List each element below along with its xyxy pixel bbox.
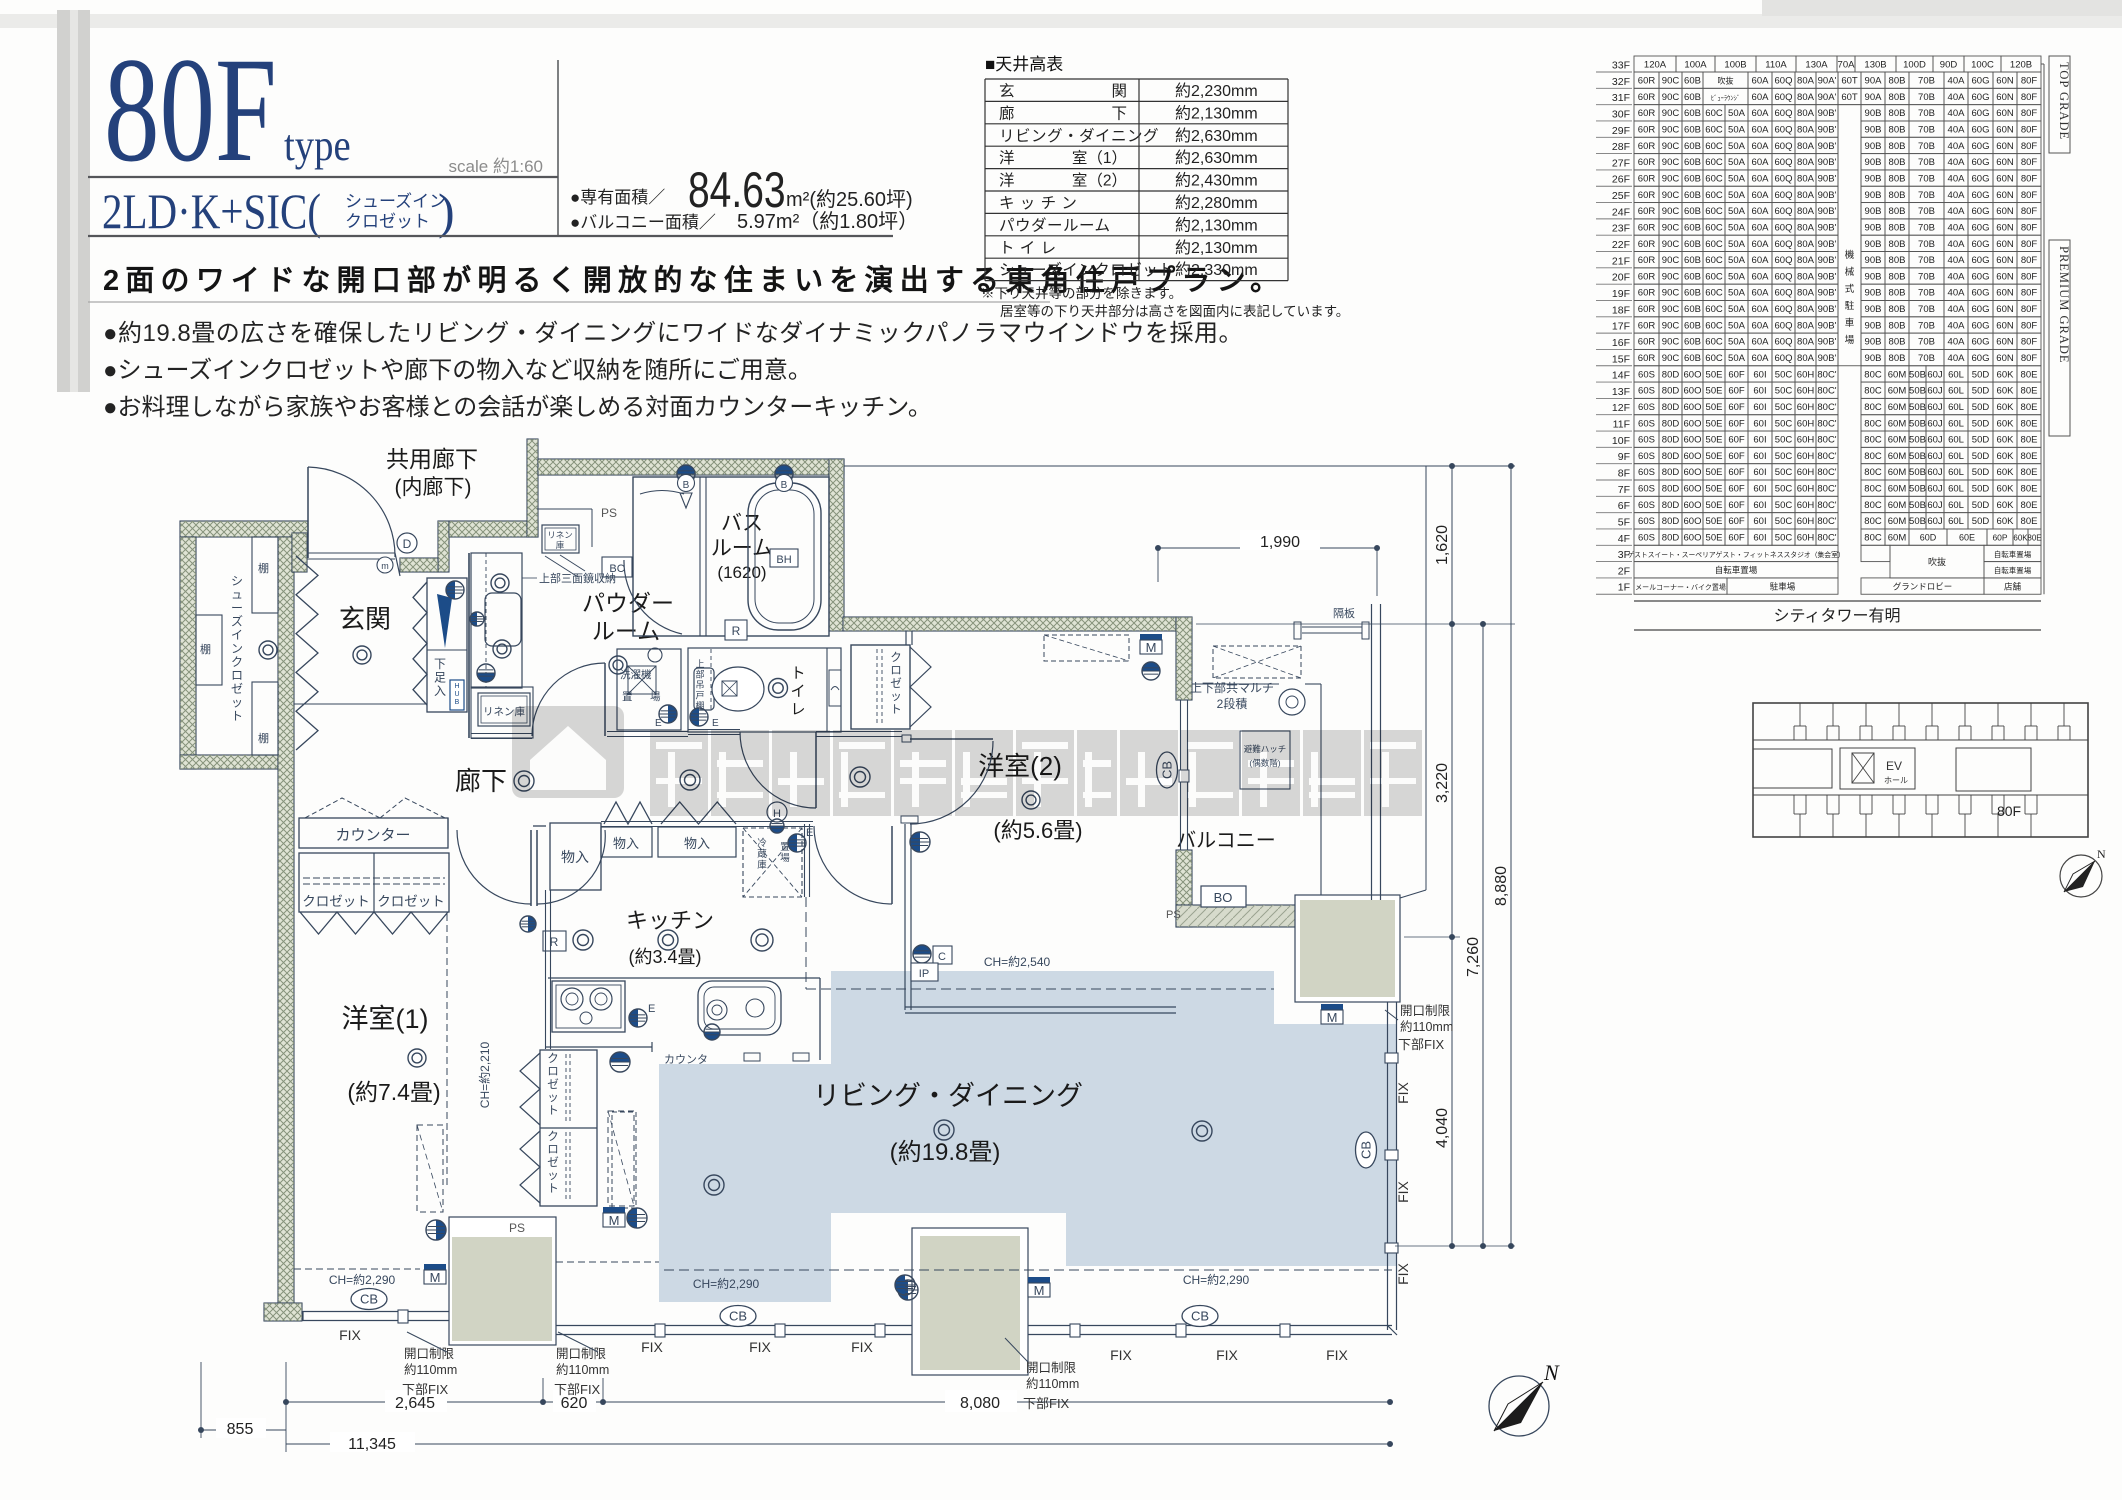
svg-text:80A: 80A (1797, 157, 1815, 168)
svg-text:18F: 18F (1612, 304, 1630, 316)
svg-text:80E: 80E (2021, 451, 2038, 462)
svg-text:80B: 80B (1889, 157, 1906, 168)
svg-text:2,645: 2,645 (395, 1395, 435, 1412)
svg-text:60G: 60G (1972, 239, 1990, 250)
svg-text:60Q: 60Q (1775, 157, 1793, 168)
svg-text:式: 式 (1845, 283, 1855, 295)
svg-text:60J: 60J (1927, 418, 1943, 429)
svg-text:リネン: リネン (547, 530, 573, 540)
svg-text:50E: 50E (1706, 418, 1723, 429)
svg-text:(約7.4畳): (約7.4畳) (347, 1079, 440, 1105)
svg-text:場: 場 (1845, 334, 1855, 346)
svg-text:33F: 33F (1612, 60, 1630, 72)
svg-text:ッ: ッ (890, 691, 902, 703)
svg-text:90B': 90B' (1818, 337, 1837, 348)
svg-text:M: M (609, 1213, 620, 1228)
svg-text:40A: 40A (1948, 76, 1966, 87)
svg-text:60R: 60R (1638, 271, 1656, 282)
svg-text:60O: 60O (1684, 402, 1702, 413)
svg-text:90B: 90B (1865, 320, 1882, 331)
svg-text:60G: 60G (1972, 173, 1990, 184)
svg-text:50B: 50B (1909, 451, 1926, 462)
svg-text:バス: バス (721, 512, 763, 535)
svg-text:80E: 80E (2021, 369, 2038, 380)
svg-text:60I: 60I (1753, 435, 1766, 446)
svg-text:60I: 60I (1753, 402, 1766, 413)
svg-text:90B: 90B (1865, 190, 1882, 201)
svg-text:60A: 60A (1752, 304, 1770, 315)
svg-text:11F: 11F (1613, 419, 1630, 431)
svg-text:50A: 50A (1728, 353, 1746, 364)
svg-text:FIX: FIX (1395, 1262, 1411, 1284)
svg-text:60B: 60B (1684, 353, 1701, 364)
svg-text:19F: 19F (1612, 288, 1630, 300)
svg-text:60M: 60M (1888, 402, 1907, 413)
svg-text:80C: 80C (1864, 467, 1882, 478)
svg-text:80B: 80B (1889, 173, 1906, 184)
svg-text:50E: 50E (1706, 369, 1723, 380)
svg-text:80C: 80C (1864, 369, 1882, 380)
svg-text:32F: 32F (1612, 76, 1630, 88)
svg-text:CH=約2,290: CH=約2,290 (329, 1272, 396, 1287)
svg-text:ゼ: ゼ (547, 1078, 559, 1091)
svg-text:80B: 80B (1889, 239, 1906, 250)
svg-text:40A: 40A (1948, 222, 1966, 233)
svg-text:60O: 60O (1684, 516, 1702, 527)
svg-text:上部三面鏡収納: 上部三面鏡収納 (539, 571, 616, 585)
svg-text:50B: 50B (1909, 402, 1926, 413)
svg-text:60B: 60B (1684, 92, 1701, 103)
svg-text:21F: 21F (1612, 255, 1630, 267)
svg-text:居室等の下り天井部分は高さを図面内に表記しています。: 居室等の下り天井部分は高さを図面内に表記しています。 (1000, 303, 1349, 319)
svg-text:ト: ト (790, 665, 805, 682)
svg-text:物入: 物入 (613, 836, 639, 851)
svg-text:80F: 80F (2021, 320, 2038, 331)
svg-text:棚: 棚 (258, 561, 269, 575)
svg-text:90A': 90A' (1818, 92, 1837, 103)
svg-text:ズ: ズ (231, 614, 243, 629)
svg-text:ー: ー (231, 601, 243, 615)
svg-text:R: R (732, 624, 741, 638)
svg-text:60F: 60F (1728, 418, 1745, 429)
svg-text:機: 機 (1845, 249, 1855, 261)
svg-text:70B: 70B (1918, 157, 1935, 168)
svg-text:50A: 50A (1728, 320, 1746, 331)
svg-text:物入: 物入 (561, 849, 589, 865)
svg-text:2F: 2F (1618, 565, 1630, 577)
svg-text:12F: 12F (1612, 402, 1630, 414)
svg-text:80C': 80C' (1817, 418, 1836, 429)
svg-text:60N: 60N (1996, 239, 2014, 250)
svg-text:80F: 80F (2021, 141, 2038, 152)
svg-text:約2,130mm: 約2,130mm (1175, 104, 1258, 122)
svg-text:(約5.6畳): (約5.6畳) (993, 818, 1082, 843)
svg-text:B: B (455, 699, 460, 706)
svg-text:PS: PS (601, 506, 617, 520)
svg-text:60R: 60R (1638, 108, 1656, 119)
svg-text:70B: 70B (1918, 108, 1935, 119)
svg-text:50B: 50B (1909, 369, 1926, 380)
svg-text:70B: 70B (1918, 222, 1935, 233)
svg-text:50C: 50C (1775, 418, 1793, 429)
svg-text:80F: 80F (2021, 92, 2038, 103)
svg-text:90B: 90B (1865, 337, 1882, 348)
svg-text:40A: 40A (1948, 173, 1966, 184)
svg-text:PS: PS (1166, 909, 1181, 921)
svg-text:80E: 80E (2021, 418, 2038, 429)
svg-text:FIX: FIX (851, 1339, 873, 1355)
svg-text:FIX: FIX (1326, 1347, 1348, 1363)
svg-text:3,220: 3,220 (1434, 763, 1451, 803)
svg-text:60A: 60A (1752, 222, 1770, 233)
svg-text:50A: 50A (1728, 157, 1746, 168)
svg-text:80C': 80C' (1817, 451, 1836, 462)
svg-text:90C: 90C (1662, 222, 1680, 233)
svg-text:90B: 90B (1865, 173, 1882, 184)
svg-text:80B: 80B (1889, 108, 1906, 119)
svg-text:16F: 16F (1612, 337, 1630, 349)
svg-text:60B: 60B (1684, 190, 1701, 201)
svg-text:CH=約2,290: CH=約2,290 (693, 1276, 760, 1291)
svg-text:60Q: 60Q (1775, 125, 1793, 136)
svg-text:90A': 90A' (1818, 76, 1837, 87)
svg-text:80F: 80F (2021, 157, 2038, 168)
svg-text:PREMIUM GRADE: PREMIUM GRADE (2057, 246, 2071, 364)
svg-text:ルーム: ルーム (592, 618, 660, 644)
svg-text:約110mm: 約110mm (404, 1362, 457, 1377)
svg-text:カウンター: カウンター (335, 827, 410, 844)
svg-text:●シューズインクロゼットや廊下の物入など収納を随所にご用意。: ●シューズインクロゼットや廊下の物入など収納を随所にご用意。 (103, 357, 812, 384)
svg-text:120B: 120B (2010, 59, 2032, 70)
svg-text:60B: 60B (1684, 304, 1701, 315)
svg-text:40A: 40A (1948, 125, 1966, 136)
svg-text:60S: 60S (1638, 467, 1655, 478)
svg-text:60A: 60A (1752, 271, 1770, 282)
svg-text:80A: 80A (1797, 76, 1815, 87)
svg-text:26F: 26F (1612, 174, 1630, 186)
svg-text:60P: 60P (1992, 533, 2007, 543)
svg-text:80B: 80B (1889, 222, 1906, 233)
svg-text:60F: 60F (1728, 386, 1745, 397)
svg-text:90C: 90C (1662, 288, 1680, 299)
svg-text:60B: 60B (1684, 157, 1701, 168)
svg-text:50A: 50A (1728, 125, 1746, 136)
svg-text:CB: CB (729, 1309, 747, 1324)
svg-text:50A: 50A (1728, 271, 1746, 282)
svg-text:50B: 50B (1909, 435, 1926, 446)
svg-text:60H: 60H (1797, 435, 1815, 446)
svg-text:40A: 40A (1948, 141, 1966, 152)
svg-text:90C: 90C (1662, 239, 1680, 250)
svg-text:80D: 80D (1662, 402, 1680, 413)
svg-text:下: 下 (434, 657, 446, 671)
svg-text:80D: 80D (1662, 516, 1680, 527)
svg-text:約2,280mm: 約2,280mm (1175, 194, 1258, 212)
svg-text:60I: 60I (1753, 500, 1766, 511)
svg-text:80C: 80C (1864, 418, 1882, 429)
svg-text:80A: 80A (1797, 141, 1815, 152)
svg-text:60N: 60N (1996, 125, 2014, 136)
svg-text:50A: 50A (1728, 222, 1746, 233)
svg-text:80E: 80E (2021, 516, 2038, 527)
svg-text:60L: 60L (1948, 369, 1964, 380)
svg-text:80A: 80A (1797, 337, 1815, 348)
svg-text:2段積: 2段積 (1217, 696, 1248, 711)
svg-text:60C: 60C (1705, 206, 1723, 217)
svg-text:60G: 60G (1972, 157, 1990, 168)
svg-text:60A: 60A (1752, 173, 1770, 184)
svg-text:(約19.8畳): (約19.8畳) (890, 1139, 1001, 1166)
svg-text:6F: 6F (1618, 500, 1630, 512)
svg-text:m: m (381, 561, 389, 571)
svg-text:70B: 70B (1918, 206, 1935, 217)
svg-text:60I: 60I (1753, 369, 1766, 380)
svg-text:開口制限: 開口制限 (1400, 1004, 1451, 1018)
svg-text:60R: 60R (1638, 92, 1656, 103)
svg-text:8,880: 8,880 (1493, 866, 1510, 906)
svg-text:玄関: 玄関 (339, 604, 391, 634)
svg-text:17F: 17F (1612, 321, 1630, 333)
svg-text:80B: 80B (1889, 206, 1906, 217)
svg-text:90C: 90C (1662, 92, 1680, 103)
svg-text:60Q: 60Q (1775, 337, 1793, 348)
svg-text:60H: 60H (1797, 418, 1815, 429)
svg-text:60A: 60A (1752, 353, 1770, 364)
svg-text:50D: 50D (1972, 467, 1990, 478)
svg-text:40A: 40A (1948, 92, 1966, 103)
svg-text:80A: 80A (1797, 222, 1815, 233)
svg-text:60F: 60F (1728, 451, 1745, 462)
svg-text:7,260: 7,260 (1465, 937, 1482, 977)
svg-text:ク: ク (547, 1130, 559, 1143)
svg-text:60N: 60N (1996, 222, 2014, 233)
svg-text:60L: 60L (1948, 500, 1964, 511)
svg-text:70B: 70B (1918, 304, 1935, 315)
svg-text:90B: 90B (1865, 239, 1882, 250)
svg-text:60C: 60C (1705, 255, 1723, 266)
svg-text:84.63: 84.63 (688, 161, 786, 218)
svg-text:60N: 60N (1996, 255, 2014, 266)
svg-text:50D: 50D (1972, 484, 1990, 495)
svg-text:60Q: 60Q (1775, 353, 1793, 364)
svg-text:50A: 50A (1728, 173, 1746, 184)
svg-text:60G: 60G (1972, 190, 1990, 201)
svg-text:棚: 棚 (200, 642, 211, 656)
svg-text:60C: 60C (1705, 222, 1723, 233)
svg-text:メールコーナー・バイク置場: メールコーナー・バイク置場 (1635, 582, 1726, 591)
svg-text:60M: 60M (1888, 484, 1907, 495)
svg-text:80E: 80E (2027, 534, 2041, 543)
svg-text:60B: 60B (1684, 320, 1701, 331)
svg-text:60S: 60S (1638, 402, 1655, 413)
svg-text:シ: シ (231, 574, 243, 588)
svg-text:90B: 90B (1865, 108, 1882, 119)
svg-text:自転車置場: 自転車置場 (1994, 565, 2032, 575)
svg-text:80F: 80F (2021, 353, 2038, 364)
svg-text:60F: 60F (1728, 435, 1745, 446)
svg-text:80E: 80E (2021, 386, 2038, 397)
svg-text:E: E (806, 827, 813, 839)
svg-text:60H: 60H (1797, 467, 1815, 478)
svg-text:60B: 60B (1684, 271, 1701, 282)
svg-text:50E: 50E (1706, 435, 1723, 446)
svg-text:70B: 70B (1918, 239, 1935, 250)
svg-text:FIX: FIX (1110, 1347, 1132, 1363)
svg-text:60I: 60I (1753, 386, 1766, 397)
svg-text:80F: 80F (2021, 337, 2038, 348)
svg-text:80C': 80C' (1817, 500, 1836, 511)
svg-text:FIX: FIX (1216, 1347, 1238, 1363)
svg-text:洋: 洋 (999, 172, 1015, 190)
svg-text:M: M (1327, 1010, 1338, 1025)
svg-text:60R: 60R (1638, 320, 1656, 331)
svg-text:80D: 80D (1662, 435, 1680, 446)
svg-text:60Q: 60Q (1775, 141, 1793, 152)
svg-text:蔵: 蔵 (757, 848, 767, 860)
svg-text:80C: 80C (1864, 484, 1882, 495)
svg-text:60Q: 60Q (1775, 108, 1793, 119)
svg-text:60C: 60C (1705, 108, 1723, 119)
svg-text:グランドロビー: グランドロビー (1893, 581, 1953, 591)
svg-text:60G: 60G (1972, 222, 1990, 233)
svg-text:シューズイン: シューズイン (345, 192, 446, 211)
svg-text:90B': 90B' (1818, 173, 1837, 184)
svg-text:60O: 60O (1684, 369, 1702, 380)
svg-text:60S: 60S (1638, 418, 1655, 429)
svg-text:80A: 80A (1797, 320, 1815, 331)
svg-text:5F: 5F (1618, 516, 1630, 528)
svg-text:60I: 60I (1753, 467, 1766, 478)
svg-text:60R: 60R (1638, 125, 1656, 136)
svg-text:60R: 60R (1638, 304, 1656, 315)
svg-text:60K: 60K (1997, 369, 2015, 380)
svg-text:50B: 50B (1909, 484, 1926, 495)
svg-text:60I: 60I (1753, 484, 1766, 495)
svg-text:50C: 50C (1775, 435, 1793, 446)
svg-text:80B: 80B (1889, 190, 1906, 201)
svg-text:廊: 廊 (999, 104, 1015, 122)
svg-text:80D: 80D (1662, 369, 1680, 380)
svg-text:リビング・ダイニング: リビング・ダイニング (813, 1081, 1083, 1111)
svg-text:90C: 90C (1662, 206, 1680, 217)
svg-text:28F: 28F (1612, 141, 1630, 153)
svg-text:60C: 60C (1705, 320, 1723, 331)
svg-text:自転車置場: 自転車置場 (1994, 549, 2032, 559)
svg-text:60Q: 60Q (1775, 76, 1793, 87)
svg-text:60J: 60J (1927, 386, 1943, 397)
svg-text:60A: 60A (1752, 288, 1770, 299)
svg-text:7F: 7F (1618, 484, 1630, 496)
svg-text:CH=約2,210: CH=約2,210 (477, 1041, 492, 1108)
svg-text:60M: 60M (1888, 418, 1907, 429)
svg-text:80E: 80E (2021, 500, 2038, 511)
svg-text:60S: 60S (1638, 500, 1655, 511)
svg-text:80F: 80F (2021, 173, 2038, 184)
svg-text:80C: 80C (1864, 451, 1882, 462)
svg-text:BH: BH (776, 554, 791, 566)
svg-text:70A: 70A (1838, 59, 1856, 70)
svg-text:1F: 1F (1618, 582, 1630, 594)
svg-text:60N: 60N (1996, 108, 2014, 119)
svg-text:1,990: 1,990 (1260, 534, 1300, 551)
svg-text:60L: 60L (1948, 386, 1964, 397)
svg-text:棚: 棚 (258, 731, 269, 745)
svg-text:CB: CB (360, 1292, 378, 1307)
svg-text:40A: 40A (1948, 255, 1966, 266)
svg-text:約110mm: 約110mm (1026, 1376, 1079, 1391)
svg-text:90B: 90B (1865, 157, 1882, 168)
svg-text:50B: 50B (1909, 418, 1926, 429)
svg-text:40A: 40A (1948, 288, 1966, 299)
svg-text:50C: 50C (1775, 386, 1793, 397)
svg-text:60B: 60B (1684, 337, 1701, 348)
svg-text:15F: 15F (1612, 353, 1630, 365)
svg-text:60N: 60N (1996, 337, 2014, 348)
svg-text:庫: 庫 (757, 859, 767, 871)
svg-text:60R: 60R (1638, 255, 1656, 266)
svg-text:N: N (1543, 1360, 1560, 1385)
svg-text:80F: 80F (2021, 206, 2038, 217)
svg-text:40A: 40A (1948, 353, 1966, 364)
svg-text:ン: ン (231, 642, 243, 656)
svg-text:ルーム: ルーム (711, 537, 773, 560)
svg-text:22F: 22F (1612, 239, 1630, 251)
svg-text:100D: 100D (1903, 59, 1926, 70)
svg-text:ゼ: ゼ (231, 682, 243, 696)
svg-text:90B: 90B (1865, 353, 1882, 364)
svg-text:ゲストスイート・スーペリアゲスト・フィットネススタジオ（集会: ゲストスイート・スーペリアゲスト・フィットネススタジオ（集会室） (1627, 550, 1844, 559)
svg-text:60J: 60J (1927, 435, 1943, 446)
svg-text:8F: 8F (1618, 468, 1630, 480)
svg-text:下: 下 (1111, 105, 1127, 122)
svg-text:60M: 60M (1888, 386, 1907, 397)
svg-text:60J: 60J (1927, 500, 1943, 511)
svg-text:60A: 60A (1752, 206, 1770, 217)
svg-text:60Q: 60Q (1775, 239, 1793, 250)
svg-text:90D: 90D (1940, 59, 1958, 70)
svg-text:60A: 60A (1752, 125, 1770, 136)
svg-text:60C: 60C (1705, 337, 1723, 348)
svg-text:60K: 60K (1997, 484, 2015, 495)
svg-text:80F: 80F (2021, 108, 2038, 119)
svg-text:80C': 80C' (1817, 386, 1836, 397)
svg-text:60M: 60M (1888, 500, 1907, 511)
svg-text:開口制限: 開口制限 (556, 1347, 607, 1361)
svg-text:1,620: 1,620 (1434, 525, 1451, 565)
svg-text:90B': 90B' (1818, 141, 1837, 152)
svg-text:隔板: 隔板 (1333, 606, 1355, 620)
svg-text:60R: 60R (1638, 76, 1656, 87)
svg-text:90B: 90B (1865, 125, 1882, 136)
svg-text:60A: 60A (1752, 76, 1770, 87)
svg-text:約2,630mm: 約2,630mm (1175, 149, 1258, 167)
svg-text:20F: 20F (1612, 272, 1630, 284)
svg-text:120A: 120A (1644, 59, 1667, 70)
svg-text:約2,230mm: 約2,230mm (1175, 82, 1258, 100)
svg-text:60B: 60B (1684, 288, 1701, 299)
svg-text:60O: 60O (1684, 435, 1702, 446)
svg-text:バルコニー: バルコニー (1176, 830, 1276, 852)
svg-text:60A: 60A (1752, 108, 1770, 119)
svg-text:ク: ク (547, 1052, 559, 1065)
svg-text:60I: 60I (1753, 418, 1766, 429)
svg-text:60M: 60M (1888, 451, 1907, 462)
svg-text:50C: 50C (1775, 500, 1793, 511)
svg-text:80C': 80C' (1817, 484, 1836, 495)
svg-text:60A: 60A (1752, 255, 1770, 266)
svg-text:ト: ト (231, 709, 243, 723)
svg-text:50E: 50E (1706, 500, 1723, 511)
